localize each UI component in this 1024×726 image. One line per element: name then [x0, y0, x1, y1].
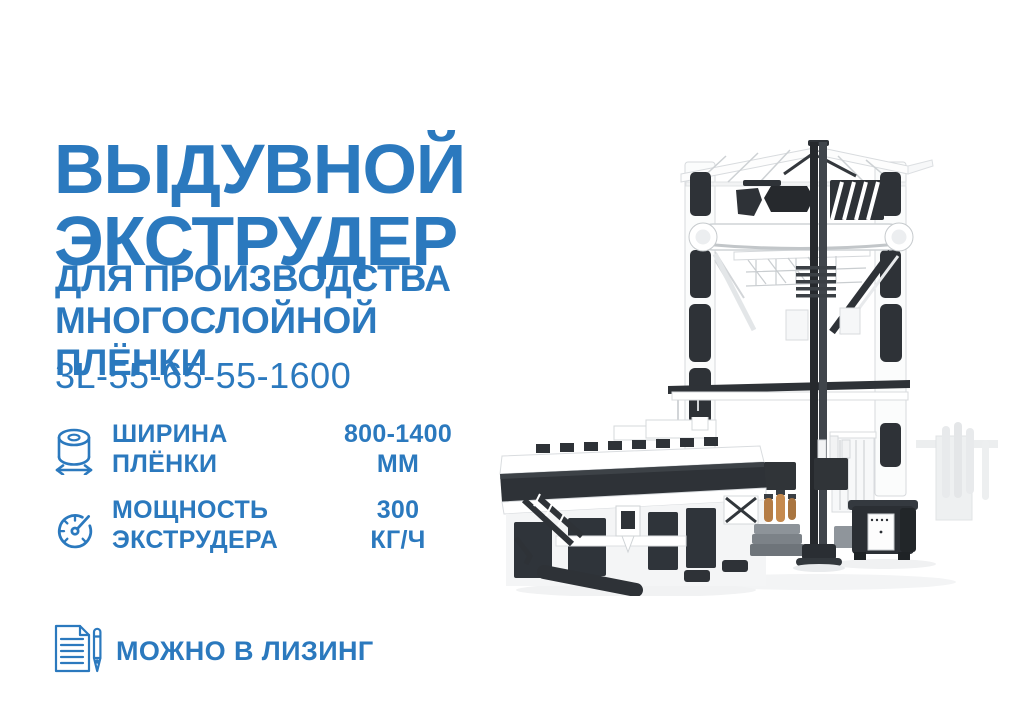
spec-label-capacity: МОЩНОСТЬ ЭКСТРУДЕРА	[112, 495, 278, 555]
model-number: 3L-55-65-55-1600	[55, 356, 351, 396]
spec-row-film-width: ШИРИНА ПЛЁНКИ 800-1400 ММ	[54, 419, 474, 481]
subtitle-line-2: МНОГОСЛОЙНОЙ	[55, 300, 377, 341]
page-title: ВЫДУВНОЙ ЭКСТРУДЕР	[54, 133, 465, 277]
machine-image	[496, 140, 1016, 596]
leasing-label: МОЖНО В ЛИЗИНГ	[116, 622, 374, 680]
spec-label-film-width: ШИРИНА ПЛЁНКИ	[112, 419, 228, 479]
subtitle-line-1: ДЛЯ ПРОИЗВОДСТВА	[55, 258, 451, 299]
spec-label-line: ЭКСТРУДЕРА	[112, 526, 278, 554]
spec-value-line: 800-1400	[344, 420, 452, 448]
title-line-1: ВЫДУВНОЙ	[54, 130, 465, 208]
spec-label-line: ПЛЁНКИ	[112, 450, 217, 478]
spec-value-line: ММ	[377, 450, 419, 478]
spec-label-line: ШИРИНА	[112, 420, 228, 448]
spec-value-line: 300	[377, 496, 420, 524]
promo-banner: { "colors": { "accent": "#2b79be", "mach…	[0, 0, 1024, 726]
control-cabinet	[848, 500, 918, 560]
leasing-note: МОЖНО В ЛИЗИНГ	[50, 622, 470, 680]
spec-value-line: КГ/Ч	[370, 526, 425, 554]
spec-value-film-width: 800-1400 ММ	[330, 419, 466, 479]
spec-row-capacity: МОЩНОСТЬ ЭКСТРУДЕРА 300 КГ/Ч	[54, 495, 474, 557]
film-roll-width-icon	[54, 427, 98, 475]
speedometer-icon	[54, 508, 96, 550]
winder-platform	[500, 411, 766, 590]
spec-value-capacity: 300 КГ/Ч	[330, 495, 466, 555]
document-pen-icon	[50, 622, 104, 676]
aux-structure	[916, 422, 998, 520]
nip-roller-cylinder	[689, 223, 913, 251]
spec-label-line: МОЩНОСТЬ	[112, 496, 268, 524]
orange-accents	[764, 490, 796, 522]
machine-render	[496, 140, 1016, 596]
